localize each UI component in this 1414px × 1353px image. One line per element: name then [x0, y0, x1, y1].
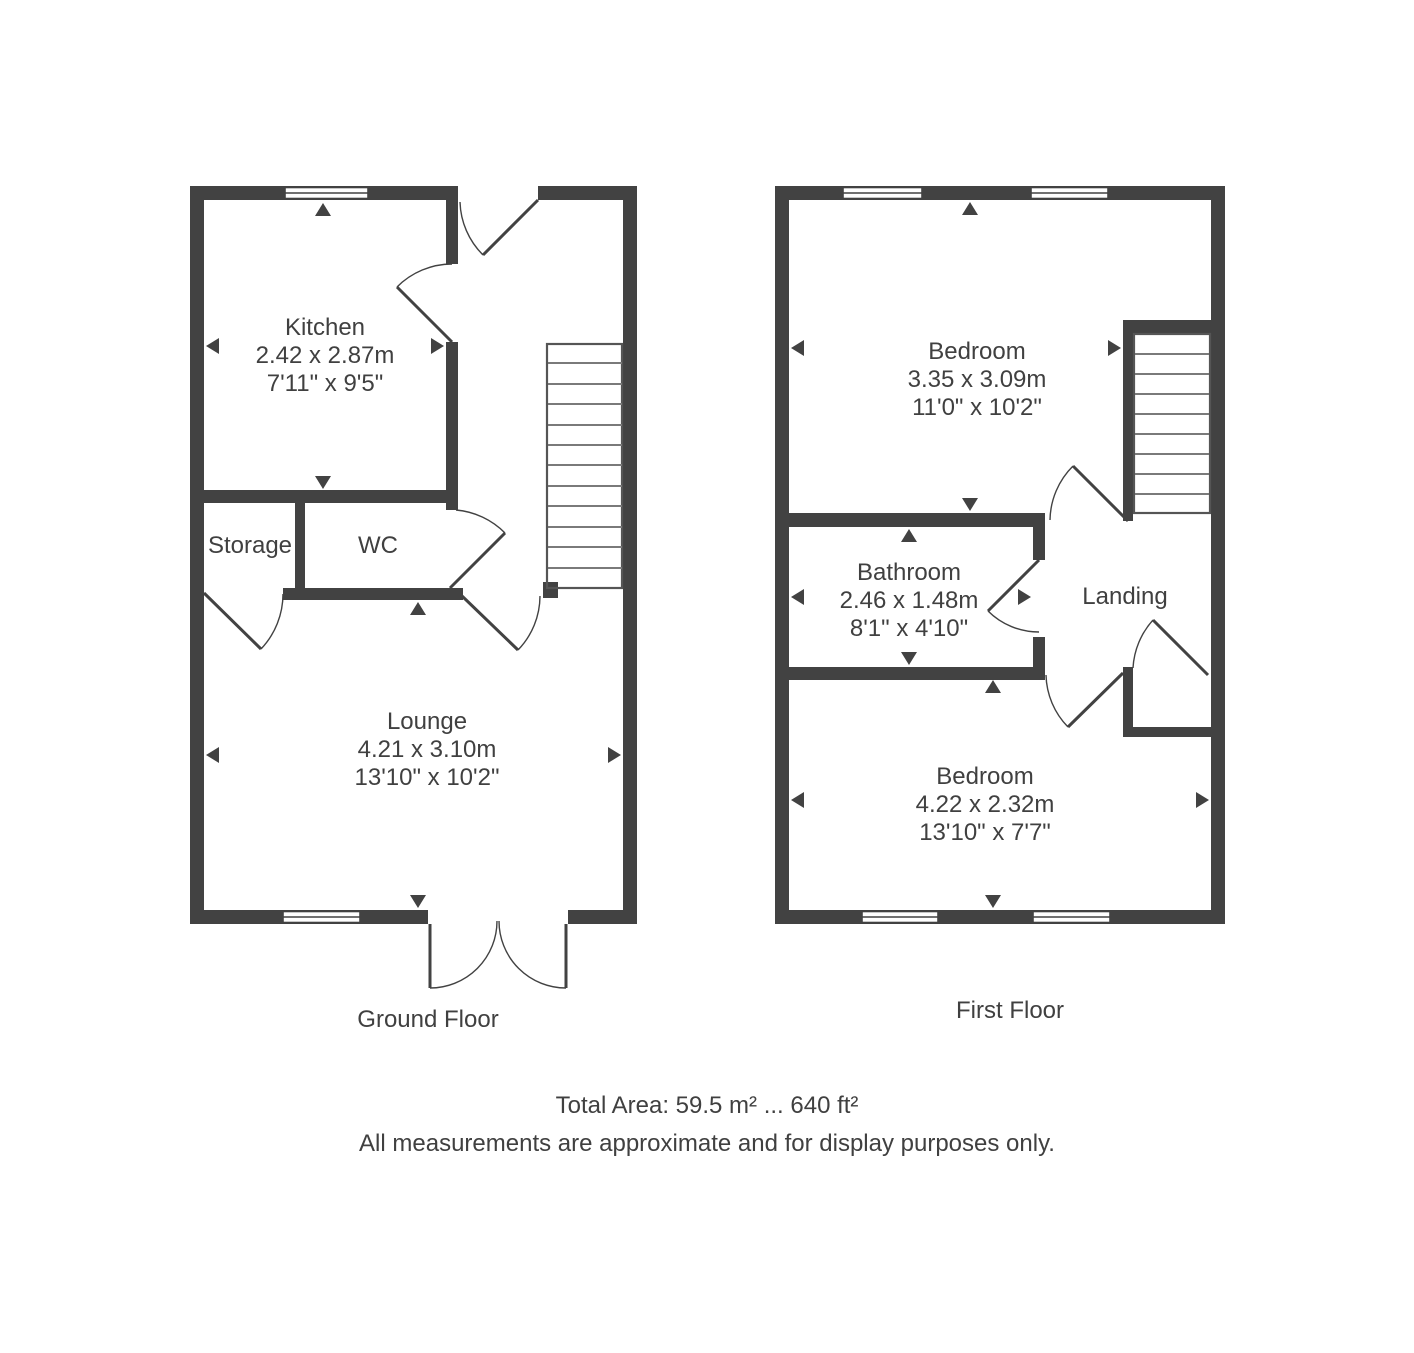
wall-segment [446, 200, 458, 264]
room-name: Bathroom [857, 559, 961, 586]
room-imperial: 11'0" x 10'2" [912, 394, 1042, 421]
arrow-up-icon [410, 602, 426, 615]
ground-floor-plan: Kitchen 2.42 x 2.87m 7'11" x 9'5" Storag… [190, 186, 637, 1033]
arrow-right-icon [608, 747, 621, 763]
landing-cupboard-door [1133, 620, 1208, 675]
arrow-left-icon [791, 792, 804, 808]
wall-segment [190, 186, 204, 924]
arrow-left-icon [791, 589, 804, 605]
wall-segment [775, 186, 789, 924]
room-imperial: 8'1" x 4'10" [850, 615, 968, 642]
arrow-down-icon [315, 476, 331, 489]
room-name: Bedroom [928, 338, 1025, 365]
total-area-caption: Total Area: 59.5 m² ... 640 ft² [556, 1092, 859, 1119]
bedroom1-door [1050, 466, 1128, 521]
arrow-down-icon [901, 652, 917, 665]
room-metric: 2.42 x 2.87m [256, 342, 395, 369]
wall-segment [1033, 527, 1045, 560]
wall-segment [789, 667, 1045, 680]
wall-segment [283, 588, 463, 600]
storage-door [204, 593, 283, 649]
arrow-right-icon [1108, 340, 1121, 356]
room-imperial: 7'11" x 9'5" [267, 370, 384, 397]
arrow-right-icon [1196, 792, 1209, 808]
room-metric: 4.21 x 3.10m [358, 736, 497, 763]
wall-segment [1033, 637, 1045, 667]
wall-segment [775, 910, 1225, 924]
arrow-up-icon [985, 680, 1001, 693]
wall-segment [543, 582, 558, 598]
arrow-down-icon [985, 895, 1001, 908]
wall-segment [1123, 320, 1133, 521]
floor-title: Ground Floor [357, 1006, 498, 1033]
bedroom2-door [1046, 673, 1123, 727]
arrow-up-icon [901, 529, 917, 542]
first-floor-plan: Bedroom 3.35 x 3.09m 11'0" x 10'2" Bathr… [775, 186, 1225, 1024]
front-door [460, 200, 538, 255]
room-imperial: 13'10" x 7'7" [919, 819, 1051, 846]
kitchen-door [397, 264, 452, 342]
entrance-double-door [430, 921, 566, 988]
window [1033, 912, 1110, 923]
wc-door [450, 510, 505, 588]
room-name: WC [358, 532, 398, 559]
window [285, 188, 368, 199]
arrow-left-icon [206, 338, 219, 354]
room-name: Storage [208, 532, 292, 559]
wall-segment [1123, 727, 1211, 737]
arrow-down-icon [962, 498, 978, 511]
room-name: Landing [1082, 583, 1167, 610]
room-name: Kitchen [285, 314, 365, 341]
wall-segment [538, 186, 637, 200]
arrow-up-icon [962, 202, 978, 215]
arrow-left-icon [206, 747, 219, 763]
wall-segment [568, 910, 637, 924]
floorplan-drawing: Kitchen 2.42 x 2.87m 7'11" x 9'5" Storag… [0, 0, 1414, 1353]
room-metric: 4.22 x 2.32m [916, 791, 1055, 818]
wall-segment [789, 513, 1045, 527]
room-metric: 3.35 x 3.09m [908, 366, 1047, 393]
room-imperial: 13'10" x 10'2" [355, 764, 500, 791]
wall-segment [1211, 186, 1225, 924]
window [843, 188, 922, 199]
window [283, 912, 360, 923]
room-name: Bedroom [936, 763, 1033, 790]
window [862, 912, 938, 923]
wall-segment [1123, 320, 1211, 334]
window [1031, 188, 1108, 199]
floor-title: First Floor [956, 997, 1064, 1024]
arrow-right-icon [431, 338, 444, 354]
room-metric: 2.46 x 1.48m [840, 587, 979, 614]
arrow-right-icon [1018, 589, 1031, 605]
bathroom-door [988, 560, 1039, 632]
first-stairs [1134, 334, 1210, 513]
wall-segment [204, 490, 452, 503]
wall-segment [295, 503, 305, 590]
lounge-door [462, 596, 540, 650]
wall-segment [623, 186, 637, 924]
wall-segment [446, 342, 458, 510]
arrow-up-icon [315, 203, 331, 216]
footer-captions: Total Area: 59.5 m² ... 640 ft² All meas… [359, 1092, 1055, 1157]
floorplan-page: Kitchen 2.42 x 2.87m 7'11" x 9'5" Storag… [0, 0, 1414, 1353]
room-name: Lounge [387, 708, 467, 735]
arrow-left-icon [791, 340, 804, 356]
arrow-down-icon [410, 895, 426, 908]
ground-stairs [547, 344, 622, 588]
disclaimer-caption: All measurements are approximate and for… [359, 1130, 1055, 1157]
wall-segment [1123, 667, 1133, 737]
